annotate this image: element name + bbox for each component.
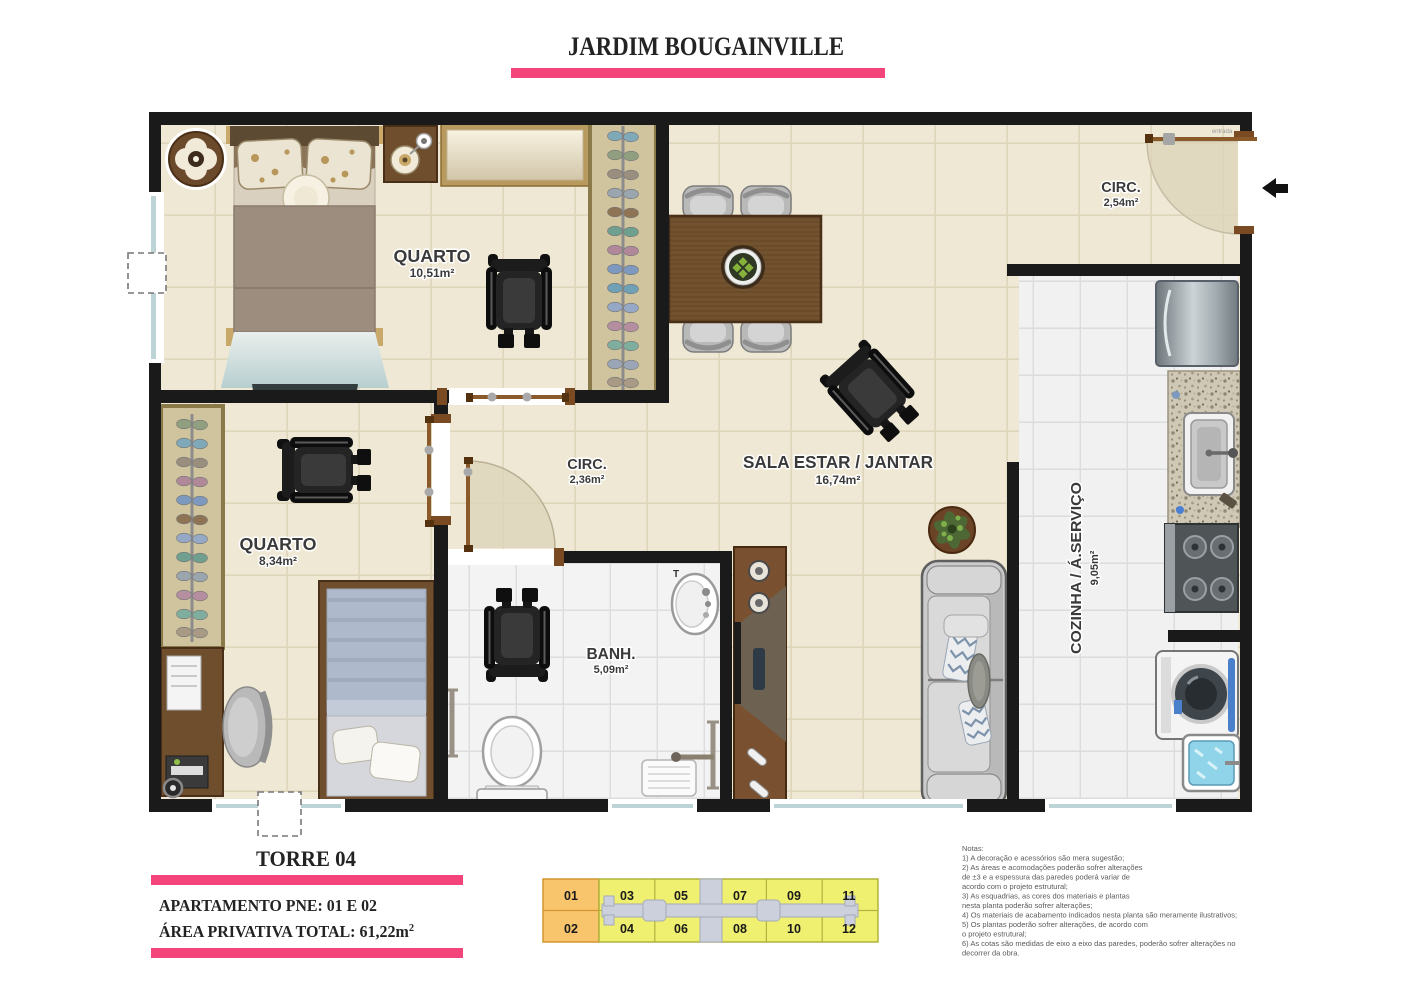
- svg-text:5,09m²: 5,09m²: [594, 664, 629, 676]
- svg-text:11: 11: [842, 889, 855, 903]
- svg-text:07: 07: [733, 889, 747, 903]
- svg-text:acordo com o projeto estrutura: acordo com o projeto estrutural;: [962, 882, 1068, 891]
- svg-text:02: 02: [564, 922, 578, 936]
- svg-text:06: 06: [674, 922, 688, 936]
- svg-text:Notas:: Notas:: [962, 844, 984, 853]
- svg-text:de ±3 e a espessura das parede: de ±3 e a espessura das paredes poderá v…: [962, 873, 1130, 882]
- svg-text:4) Os materiais de acabamento: 4) Os materiais de acabamento indicados …: [962, 911, 1237, 920]
- svg-text:o projeto estrutural;: o projeto estrutural;: [962, 930, 1027, 939]
- svg-text:08: 08: [733, 922, 747, 936]
- svg-text:entrada: entrada: [1212, 129, 1233, 135]
- svg-text:3) As esquadrias, as cores dos: 3) As esquadrias, as cores dos materiais…: [962, 892, 1130, 901]
- svg-text:12: 12: [842, 922, 856, 936]
- svg-text:COZINHA / Á.SERVIÇO: COZINHA / Á.SERVIÇO: [1068, 482, 1085, 654]
- svg-text:decorrer da obra.: decorrer da obra.: [962, 949, 1020, 958]
- svg-text:09: 09: [787, 889, 801, 903]
- svg-text:05: 05: [674, 889, 688, 903]
- svg-text:CIRC.: CIRC.: [1101, 180, 1140, 196]
- svg-text:BANH.: BANH.: [586, 646, 635, 663]
- svg-text:04: 04: [620, 922, 634, 936]
- svg-text:2,36m²: 2,36m²: [570, 474, 605, 486]
- svg-text:2) As áreas e acomodações pode: 2) As áreas e acomodações poderão sofrer…: [962, 863, 1143, 872]
- svg-text:QUARTO: QUARTO: [394, 246, 471, 266]
- svg-text:CIRC.: CIRC.: [567, 457, 606, 473]
- svg-text:6) As cotas são medidas de eix: 6) As cotas são medidas de eixo a eixo d…: [962, 939, 1236, 948]
- svg-text:8,34m²: 8,34m²: [259, 554, 297, 568]
- svg-text:QUARTO: QUARTO: [240, 534, 317, 554]
- svg-text:16,74m²: 16,74m²: [816, 473, 861, 487]
- svg-text:10,51m²: 10,51m²: [410, 266, 455, 280]
- svg-text:JARDIM BOUGAINVILLE: JARDIM BOUGAINVILLE: [568, 32, 844, 61]
- svg-text:ÁREA PRIVATIVA TOTAL: 61,22m2: ÁREA PRIVATIVA TOTAL: 61,22m2: [159, 922, 414, 941]
- svg-text:9,05m²: 9,05m²: [1089, 550, 1101, 585]
- svg-text:nesta planta poderão sofrer al: nesta planta poderão sofrer alterações;: [962, 901, 1093, 910]
- svg-text:03: 03: [620, 889, 634, 903]
- svg-text:5) Os plantas poderão sofrer a: 5) Os plantas poderão sofrer alterações,…: [962, 920, 1148, 929]
- svg-text:1) A decoração e acessórios sã: 1) A decoração e acessórios são mera sug…: [962, 854, 1124, 863]
- svg-text:T: T: [673, 569, 679, 580]
- svg-text:10: 10: [787, 922, 801, 936]
- svg-text:APARTAMENTO PNE: 01 E 02: APARTAMENTO PNE: 01 E 02: [159, 896, 377, 915]
- svg-text:TORRE 04: TORRE 04: [256, 846, 356, 871]
- svg-text:01: 01: [564, 889, 578, 903]
- svg-text:SALA ESTAR / JANTAR: SALA ESTAR / JANTAR: [743, 452, 933, 472]
- svg-text:2,54m²: 2,54m²: [1104, 197, 1139, 209]
